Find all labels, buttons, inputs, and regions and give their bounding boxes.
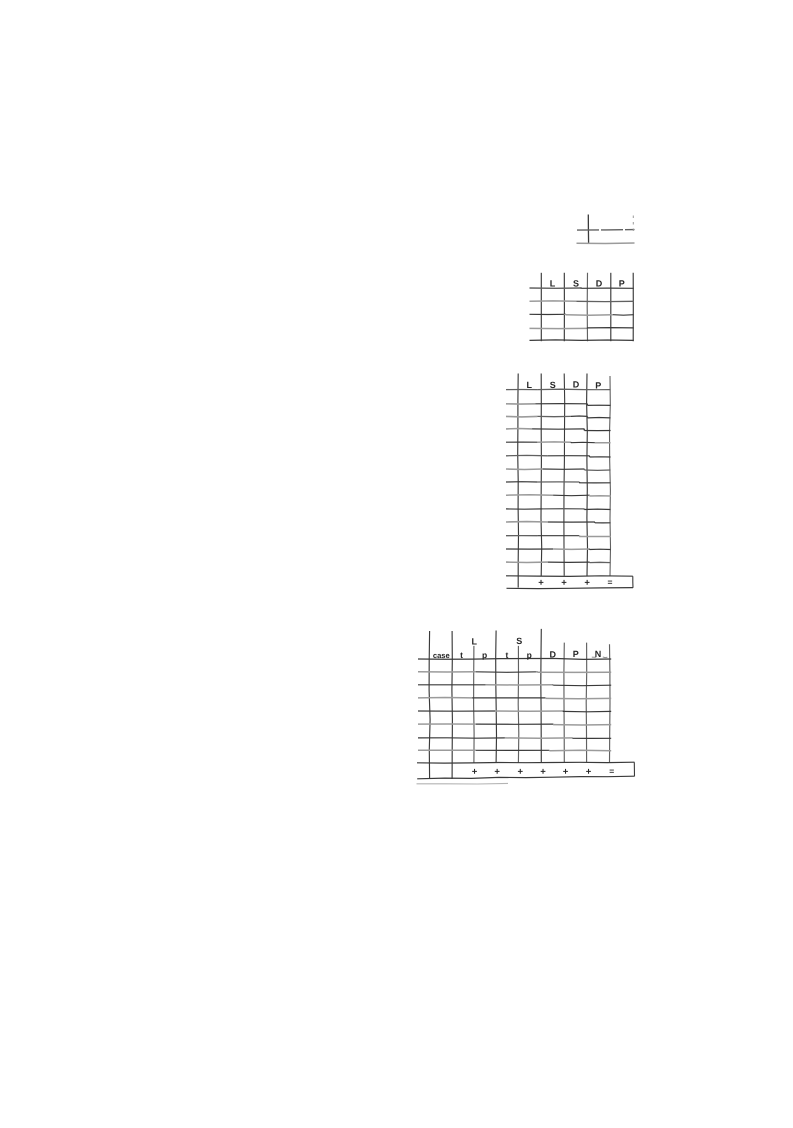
svg-text:t: t [460,650,463,660]
svg-text:+: + [494,766,500,777]
svg-text:P: P [595,381,601,391]
svg-text:case: case [433,651,450,660]
svg-text:D: D [596,278,603,288]
svg-text:t: t [505,650,508,660]
svg-text:+: + [584,577,590,588]
svg-text:p: p [482,650,487,660]
svg-text:L: L [471,636,477,646]
svg-text:+: + [540,766,546,777]
svg-text:P: P [573,649,579,659]
svg-text:+: + [561,577,567,588]
svg-text:L: L [527,380,533,390]
svg-text:P: P [619,278,625,288]
svg-text:=: = [609,766,614,776]
svg-text:L: L [550,278,556,288]
svg-text:+: + [586,766,592,777]
svg-text:S: S [550,380,556,390]
svg-text:N: N [595,649,602,659]
svg-text:+: + [563,766,569,777]
svg-text:+: + [472,766,478,777]
svg-text:+: + [538,577,544,588]
svg-text:D: D [550,649,557,659]
svg-text:D: D [573,380,580,390]
svg-text:+: + [518,766,524,777]
svg-text:S: S [516,636,522,646]
svg-text:S: S [573,278,579,288]
svg-text:=: = [608,577,613,587]
svg-text:p: p [527,650,532,660]
